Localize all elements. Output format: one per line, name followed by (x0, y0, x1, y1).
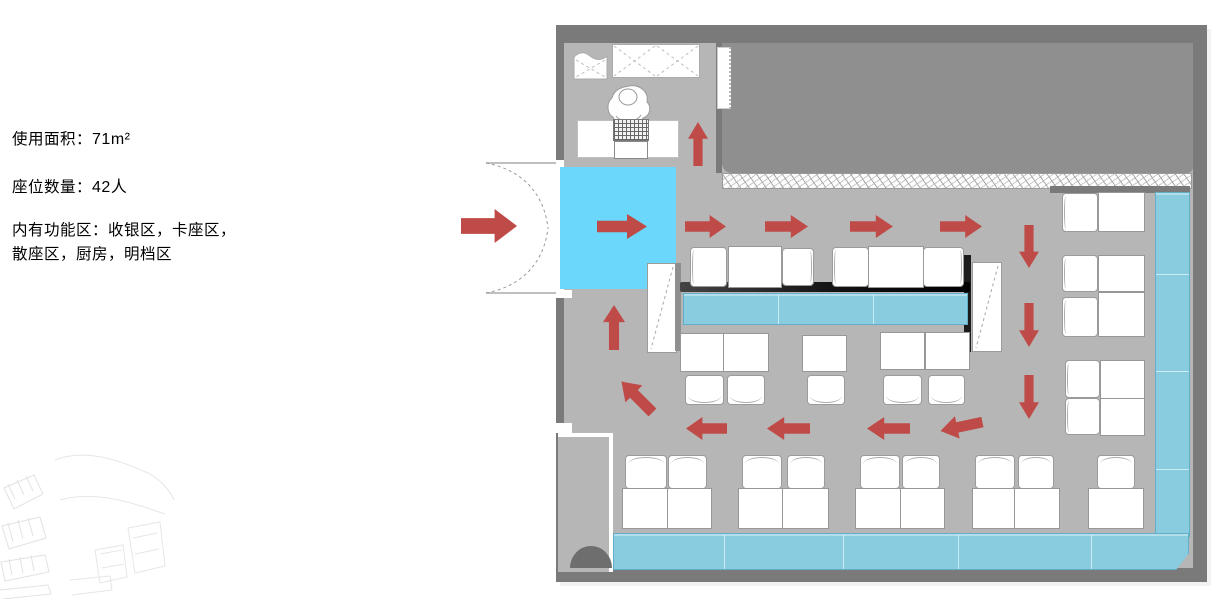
dining-chair (625, 455, 667, 489)
door-swing-icon (478, 158, 558, 298)
kitchen-area (722, 43, 1193, 173)
bench-divider (1091, 534, 1092, 569)
dining-chair (807, 375, 845, 405)
zones-info-line1: 内有功能区：收银区，卡座区， (12, 218, 236, 240)
shelf-unit-icon (573, 48, 608, 80)
dining-chair (1062, 255, 1098, 292)
dining-chair (860, 455, 900, 489)
bench-divider (778, 294, 779, 324)
wall-bottom (556, 568, 1207, 582)
dining-table (900, 488, 945, 529)
dining-table (1098, 292, 1145, 337)
seats-info: 座位数量：42人 (12, 173, 127, 197)
dining-table (1098, 192, 1145, 232)
dining-table (1088, 488, 1144, 529)
register-drawer-icon (614, 141, 648, 159)
seats-label: 座位数量： (12, 178, 92, 196)
wall-notch (556, 423, 572, 433)
dining-table (802, 335, 847, 372)
kitchen-door (717, 47, 731, 109)
bench-divider (873, 294, 874, 324)
dining-table (1098, 255, 1145, 292)
dining-table (880, 332, 925, 370)
wall-bench-bottom (613, 533, 1161, 570)
dining-table (1100, 398, 1145, 436)
dining-chair (668, 455, 707, 489)
dining-table (1100, 360, 1145, 399)
dining-chair (928, 375, 965, 405)
floor-plan (556, 25, 1207, 582)
dining-table (782, 488, 829, 529)
bench-divider (958, 534, 959, 569)
dining-chair (923, 247, 964, 287)
dining-chair (727, 375, 765, 405)
zones-info-line2: 散座区，厨房，明档区 (12, 242, 172, 264)
dining-table (925, 332, 970, 370)
dining-chair (782, 248, 814, 286)
partition-panel (972, 262, 1002, 352)
dining-chair (742, 455, 782, 489)
dining-table (723, 333, 769, 372)
wall-notch (556, 290, 572, 298)
dining-chair (1065, 360, 1100, 398)
dining-table (680, 333, 724, 372)
dining-chair (883, 375, 922, 405)
dining-table (855, 488, 902, 529)
dining-chair (1018, 455, 1054, 489)
wall-bench-right (1155, 192, 1190, 537)
wall-top (556, 25, 1207, 43)
area-label: 使用面积： (12, 130, 92, 148)
wall-right (1193, 25, 1207, 582)
area-info: 使用面积：71m² (12, 127, 130, 149)
partition-panel (647, 263, 677, 353)
cash-register-icon (613, 119, 649, 141)
dining-table (728, 246, 782, 288)
sketch-watermark (0, 430, 175, 599)
dining-chair (1097, 455, 1135, 489)
bench-divider (1156, 274, 1189, 275)
dining-chair (690, 247, 727, 287)
bench-divider (1156, 371, 1189, 372)
dining-table (667, 488, 712, 529)
dining-table (622, 488, 669, 529)
dining-table (868, 246, 924, 288)
dining-chair (902, 455, 940, 489)
dining-chair (1062, 193, 1098, 232)
dining-chair (1065, 398, 1100, 435)
shelf-unit-icon (612, 44, 700, 78)
bench-divider (843, 534, 844, 569)
bench-divider (1156, 469, 1189, 470)
dining-chair (685, 375, 724, 405)
dining-table (972, 488, 1016, 529)
dining-chair (832, 247, 869, 287)
booth-bench (683, 293, 968, 325)
dining-table (1014, 488, 1060, 529)
seats-value: 42人 (92, 179, 127, 196)
dining-chair (787, 455, 825, 489)
dining-chair (1062, 297, 1098, 337)
area-value: 71m² (92, 131, 130, 148)
dining-chair (975, 455, 1015, 489)
dining-table (738, 488, 784, 529)
bench-divider (724, 534, 725, 569)
